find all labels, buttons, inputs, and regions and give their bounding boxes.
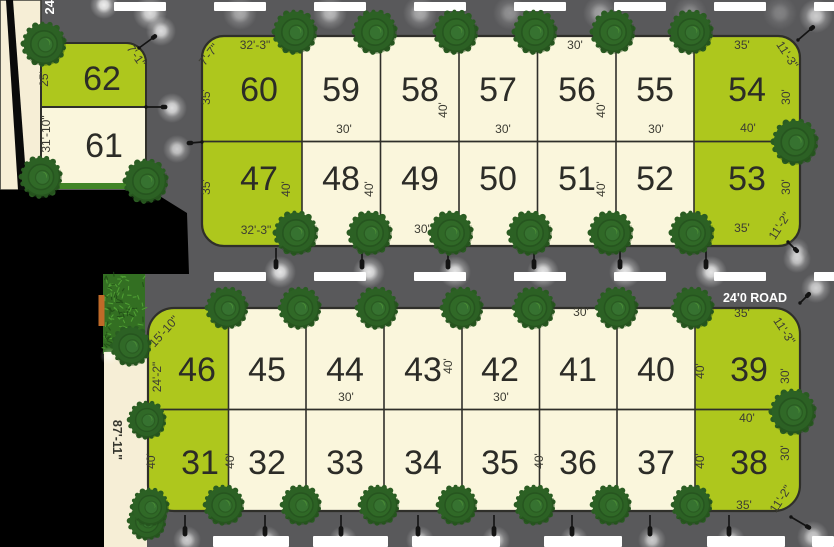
svg-text:40': 40'	[441, 358, 455, 374]
svg-text:40': 40'	[740, 121, 756, 135]
svg-text:53: 53	[728, 160, 766, 198]
svg-text:30': 30'	[573, 305, 589, 319]
svg-text:40': 40'	[594, 181, 608, 197]
svg-text:40': 40'	[279, 181, 293, 197]
svg-text:40': 40'	[144, 453, 158, 469]
svg-text:47: 47	[240, 160, 278, 198]
svg-text:30': 30'	[648, 122, 664, 136]
svg-text:39: 39	[730, 351, 768, 389]
svg-text:30': 30'	[778, 368, 792, 384]
svg-text:40': 40'	[693, 363, 707, 379]
svg-text:33: 33	[326, 444, 364, 482]
svg-text:87'-11": 87'-11"	[110, 420, 124, 460]
svg-text:36: 36	[559, 444, 597, 482]
svg-text:45: 45	[248, 351, 286, 389]
svg-text:35': 35'	[734, 221, 750, 235]
svg-text:51: 51	[558, 160, 596, 198]
svg-text:55: 55	[636, 71, 674, 109]
svg-text:40': 40'	[436, 102, 450, 118]
svg-text:30': 30'	[779, 89, 793, 105]
svg-text:41: 41	[559, 351, 597, 389]
svg-text:24: 24	[42, 0, 57, 15]
svg-text:30': 30'	[567, 38, 583, 52]
svg-text:35': 35'	[736, 498, 752, 512]
svg-text:57: 57	[479, 71, 517, 109]
svg-text:24'-2": 24'-2"	[150, 362, 164, 393]
svg-text:60: 60	[240, 71, 278, 109]
svg-text:44: 44	[326, 351, 364, 389]
svg-text:32'-3": 32'-3"	[240, 38, 271, 52]
svg-text:58: 58	[401, 71, 439, 109]
svg-text:52: 52	[636, 160, 674, 198]
svg-text:62: 62	[83, 60, 121, 98]
svg-text:56: 56	[558, 71, 596, 109]
svg-text:40': 40'	[223, 453, 237, 469]
svg-text:30': 30'	[493, 390, 509, 404]
svg-text:46: 46	[178, 351, 216, 389]
svg-text:42: 42	[481, 351, 519, 389]
svg-text:35': 35'	[734, 38, 750, 52]
svg-text:40: 40	[637, 351, 675, 389]
svg-text:43: 43	[404, 351, 442, 389]
svg-text:31: 31	[181, 444, 219, 482]
svg-text:25': 25'	[37, 71, 51, 87]
svg-text:49: 49	[401, 160, 439, 198]
svg-text:40': 40'	[532, 453, 546, 469]
svg-text:32'-3": 32'-3"	[241, 223, 272, 237]
svg-text:24'0 ROAD: 24'0 ROAD	[723, 291, 787, 305]
svg-text:40': 40'	[739, 411, 755, 425]
svg-text:40': 40'	[362, 181, 376, 197]
svg-text:30': 30'	[779, 179, 793, 195]
svg-text:32: 32	[248, 444, 286, 482]
svg-text:35': 35'	[734, 306, 750, 320]
svg-text:30': 30'	[338, 390, 354, 404]
svg-text:50: 50	[479, 160, 517, 198]
svg-text:40': 40'	[594, 102, 608, 118]
svg-text:37: 37	[637, 444, 675, 482]
svg-text:61: 61	[85, 127, 123, 165]
svg-text:31'-10": 31'-10"	[39, 115, 53, 152]
svg-text:48: 48	[322, 160, 360, 198]
svg-text:38: 38	[730, 444, 768, 482]
svg-text:34: 34	[404, 444, 442, 482]
svg-text:35': 35'	[199, 89, 213, 105]
svg-text:30': 30'	[778, 445, 792, 461]
svg-text:30': 30'	[414, 222, 430, 236]
svg-text:30': 30'	[336, 122, 352, 136]
svg-text:35': 35'	[199, 179, 213, 195]
svg-text:30': 30'	[495, 122, 511, 136]
svg-text:40': 40'	[693, 453, 707, 469]
svg-text:54: 54	[728, 71, 766, 109]
svg-text:35: 35	[481, 444, 519, 482]
svg-text:59: 59	[322, 71, 360, 109]
